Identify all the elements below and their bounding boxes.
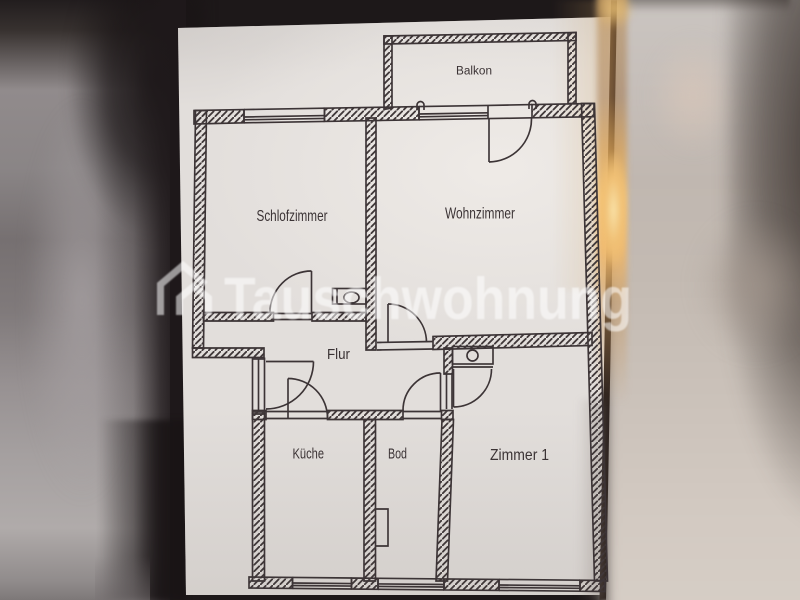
- svg-text:Flur: Flur: [327, 346, 350, 363]
- svg-text:Küche: Küche: [293, 446, 325, 463]
- svg-text:Wohnzimmer: Wohnzimmer: [445, 206, 515, 223]
- svg-text:Zimmer 1: Zimmer 1: [490, 447, 549, 464]
- svg-text:Schlofzimmer: Schlofzimmer: [257, 208, 328, 225]
- svg-text:Tauschwohnung: Tauschwohnung: [224, 266, 632, 332]
- svg-text:Balkon: Balkon: [456, 66, 492, 78]
- svg-text:Bod: Bod: [388, 446, 407, 463]
